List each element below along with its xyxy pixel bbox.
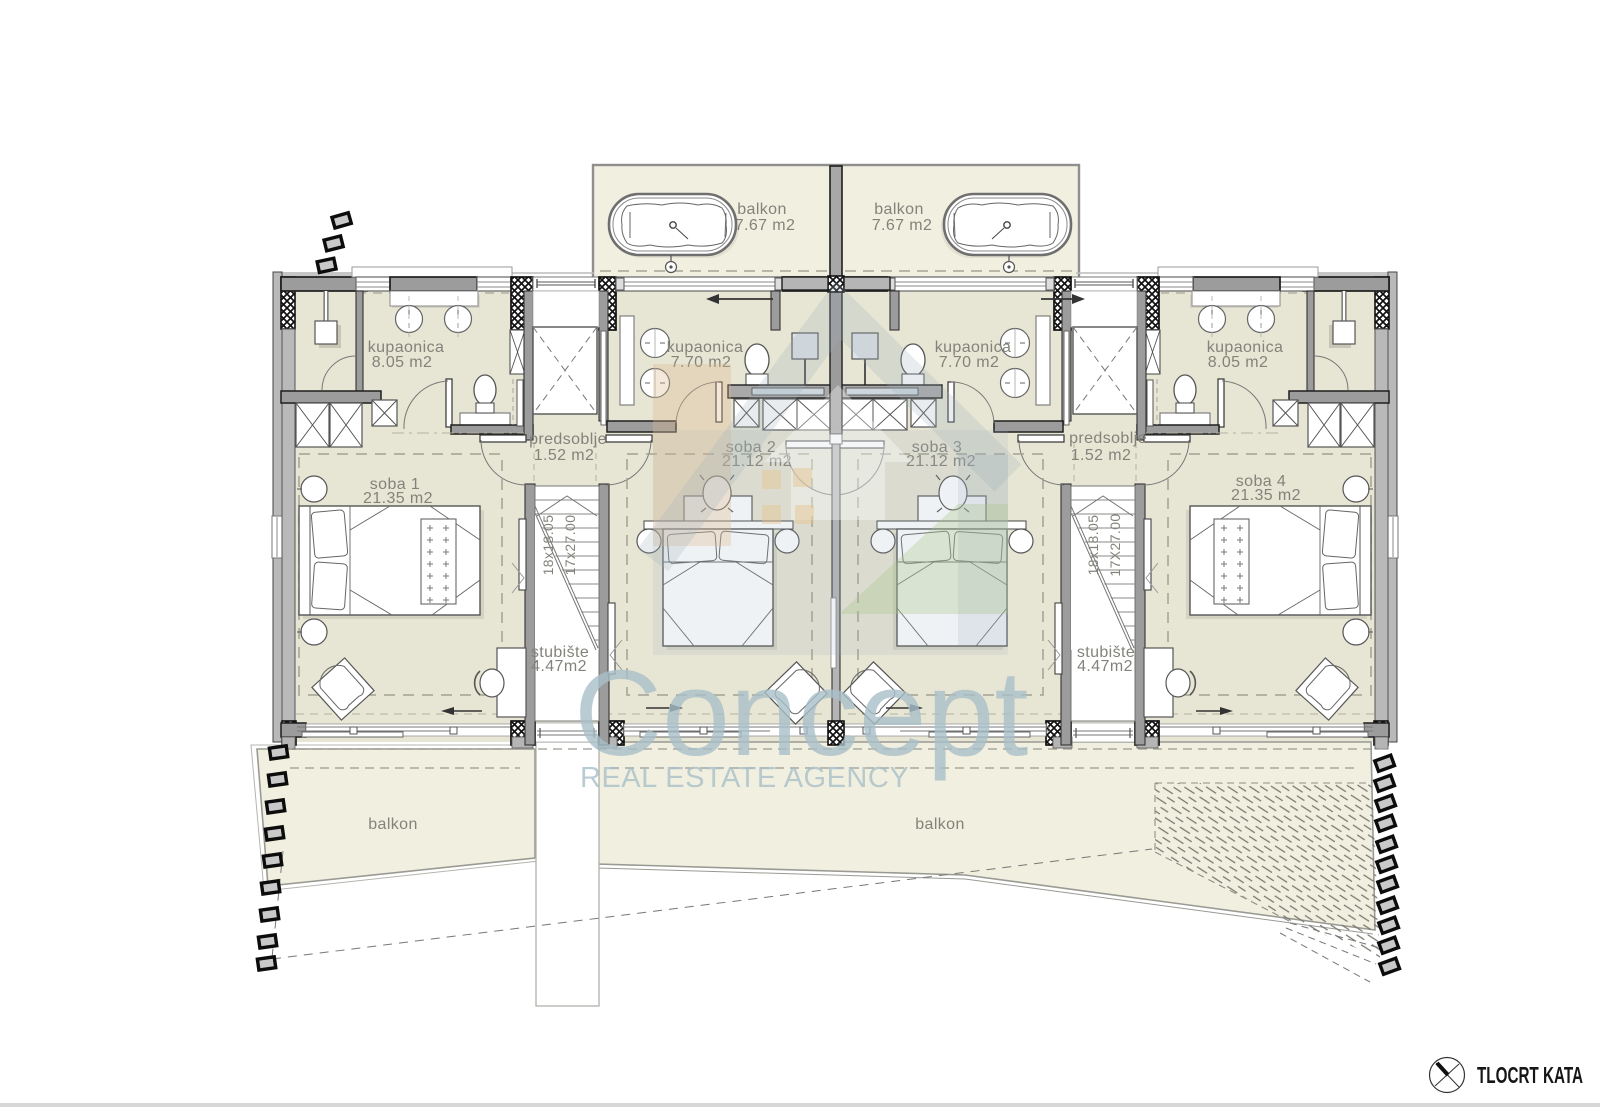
svg-text:predsoblje: predsoblje [1069, 430, 1147, 447]
svg-text:18x18.05: 18x18.05 [1085, 515, 1101, 576]
svg-text:balkon: balkon [915, 816, 965, 833]
svg-text:4.47m2: 4.47m2 [1077, 658, 1133, 675]
svg-text:balkon: balkon [368, 816, 418, 833]
svg-text:REAL ESTATE AGENCY: REAL ESTATE AGENCY [580, 762, 909, 794]
svg-text:21.35 m2: 21.35 m2 [1231, 487, 1301, 504]
svg-text:21.35 m2: 21.35 m2 [363, 490, 433, 507]
svg-text:7.70 m2: 7.70 m2 [939, 354, 1000, 371]
svg-text:balkon: balkon [874, 201, 924, 218]
svg-text:8.05 m2: 8.05 m2 [1208, 354, 1269, 371]
svg-text:balkon: balkon [737, 201, 787, 218]
svg-text:1.52 m2: 1.52 m2 [1071, 447, 1132, 464]
svg-text:1.52 m2: 1.52 m2 [534, 447, 595, 464]
svg-text:7.67 m2: 7.67 m2 [872, 217, 933, 234]
svg-text:18x18.05: 18x18.05 [540, 515, 556, 576]
svg-text:8.05 m2: 8.05 m2 [372, 354, 433, 371]
svg-text:TLOCRT KATA: TLOCRT KATA [1477, 1062, 1583, 1088]
svg-text:17X27.00: 17X27.00 [1107, 513, 1123, 576]
svg-text:predsoblje: predsoblje [529, 431, 607, 448]
svg-text:Concept: Concept [574, 645, 1028, 781]
svg-text:7.67 m2: 7.67 m2 [735, 217, 796, 234]
svg-text:17x27.00: 17x27.00 [562, 515, 578, 576]
